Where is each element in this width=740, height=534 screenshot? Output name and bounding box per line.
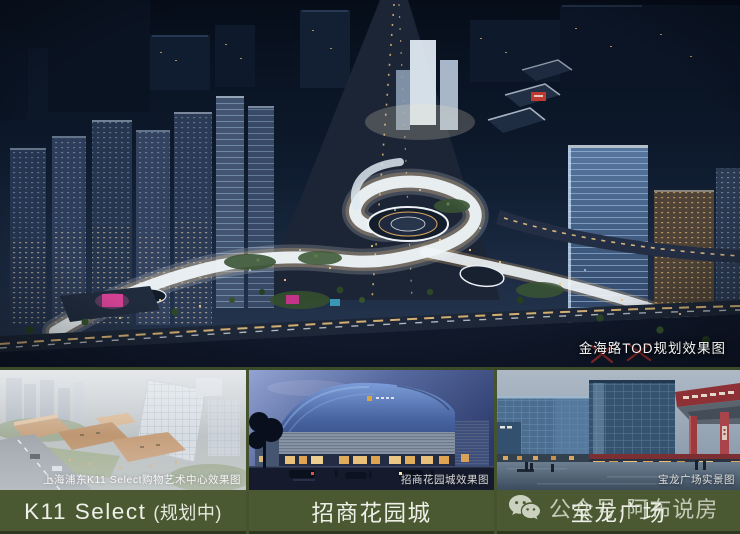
k11-caption-text: K11 Select <box>24 499 146 525</box>
powerlong-caption-text: 宝龙广场 <box>570 496 666 528</box>
cmsk-caption-text: 招商花园城 <box>311 496 431 528</box>
k11-photo: 上海浦东K11 Select购物艺术中心效果图 <box>0 370 246 490</box>
gallery-row: 上海浦东K11 Select购物艺术中心效果图 K11 Select (规划中) <box>0 370 740 534</box>
aerial-scene <box>0 0 740 367</box>
k11-caption-suffix: (规划中) <box>153 499 222 525</box>
main-render-watermark-label: 金海路TOD规划效果图 <box>579 337 726 357</box>
cmsk-photo: 招商花园城效果图 <box>249 370 494 490</box>
powerlong-photo-watermark: 宝龙广场实景图 <box>658 472 735 487</box>
gallery-item-cmsk: 招商花园城效果图 招商花园城 <box>249 370 494 534</box>
vignette <box>0 0 740 367</box>
k11-photo-watermark: 上海浦东K11 Select购物艺术中心效果图 <box>43 472 241 487</box>
cmsk-caption-band: 招商花园城 <box>249 490 494 534</box>
collage-root: 金海路TOD规划效果图 <box>0 0 740 534</box>
powerlong-caption-band: 宝龙广场 <box>497 490 740 534</box>
powerlong-photo: 宝龙广场实景图 <box>497 370 740 490</box>
gallery-item-powerlong: 宝龙广场实景图 宝龙广场 <box>497 370 740 534</box>
main-aerial-render-image: 金海路TOD规划效果图 <box>0 0 740 367</box>
cmsk-photo-watermark: 招商花园城效果图 <box>401 472 489 487</box>
gallery-item-k11: 上海浦东K11 Select购物艺术中心效果图 K11 Select (规划中) <box>0 370 246 534</box>
k11-caption-band: K11 Select (规划中) <box>0 490 246 534</box>
